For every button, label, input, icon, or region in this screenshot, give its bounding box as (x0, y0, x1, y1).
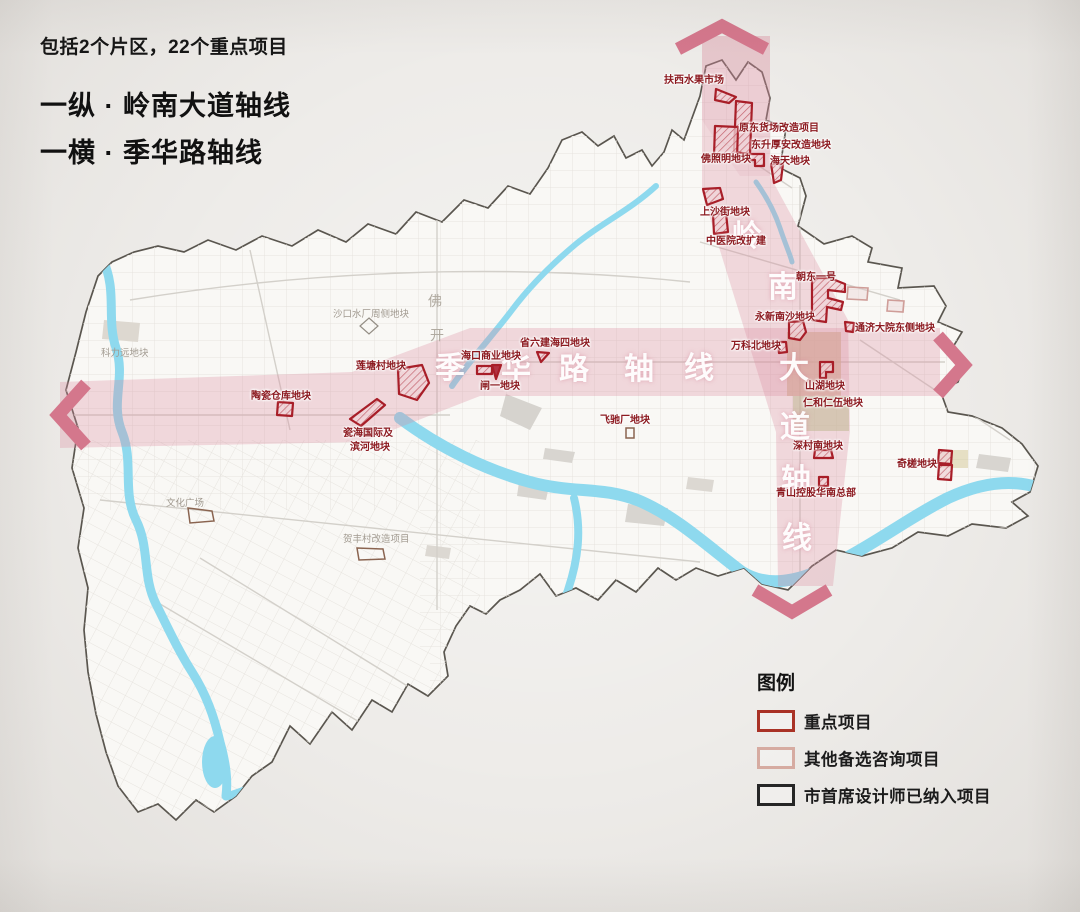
label-qingshan: 青山控股华南总部 (776, 484, 856, 499)
page-title-line1: 一纵 · 岭南大道轴线 (40, 84, 291, 123)
label-fozhaoming: 佛照明地块 (701, 150, 751, 165)
label-feichi: 飞驰厂地块 (600, 411, 650, 426)
legend-item-other: 其他备选咨询项目 (757, 746, 991, 770)
plot-qicha-south (938, 465, 952, 480)
label-hefeng: 贺丰村改造项目 (343, 531, 410, 545)
page-subtitle: 包括2个片区，22个重点项目 (40, 32, 288, 59)
label-keliyuan: 科力远地块 (101, 345, 149, 359)
legend: 图例 重点项目 其他备选咨询项目 市首席设计师已纳入项目 (757, 668, 991, 820)
label-shencun: 深村南地块 (793, 437, 843, 452)
page-title-line2: 一横 · 季华路轴线 (40, 131, 263, 170)
label-zhongyiyuan: 中医院改扩建 (706, 232, 766, 247)
h-axis-char: 路 (559, 344, 589, 388)
label-road-char-fo: 佛 (428, 291, 442, 311)
map-photo: 包括2个片区，22个重点项目 一纵 · 岭南大道轴线 一横 · 季华路轴线 季 … (0, 0, 1080, 912)
legend-label: 市首席设计师已纳入项目 (804, 783, 991, 807)
label-shakou-plant: 沙口水厂周侧地块 (333, 306, 409, 320)
v-axis-char: 线 (782, 513, 812, 557)
label-haikou: 海口商业地块 (461, 347, 521, 362)
plot-qicha-north (938, 450, 952, 464)
label-qicha: 奇槎地块 (897, 455, 937, 470)
plot-taoci-warehouse (277, 402, 293, 416)
legend-item-chief: 市首席设计师已纳入项目 (757, 783, 991, 807)
plot-yongxin-nansha (789, 321, 806, 340)
plot-haikou-commercial (477, 366, 492, 374)
label-tongji: 通济大院东侧地块 (855, 319, 935, 334)
label-fuxi: 扶西水果市场 (664, 71, 724, 86)
plot-tongji (845, 322, 854, 332)
legend-swatch-chief-designer (757, 784, 795, 806)
label-dongsheng: 东升厚安改造地块 (751, 136, 831, 151)
label-shanhu: 山湖地块 (805, 377, 845, 392)
label-wenhua-square: 文化广场 (166, 495, 204, 509)
h-axis-char: 轴 (624, 344, 654, 388)
label-renhe: 仁和仁伍地块 (803, 394, 863, 409)
legend-swatch-key-project (757, 710, 795, 732)
legend-swatch-other-project (757, 747, 795, 769)
label-road-char-kai: 开 (430, 325, 444, 345)
label-shengliujian: 省六建海四地块 (520, 334, 590, 349)
legend-label: 其他备选咨询项目 (804, 746, 940, 770)
label-chaodong: 朝东一号 (796, 268, 836, 283)
label-yuandong: 原东货场改造项目 (739, 119, 819, 134)
v-axis-char: 南 (768, 262, 798, 306)
label-yongxin: 永新南沙地块 (755, 308, 815, 323)
label-cihai-line1: 瓷海国际及 (343, 424, 393, 439)
label-wanke: 万科北地块 (731, 337, 781, 352)
arrow-down (755, 590, 829, 612)
legend-item-key: 重点项目 (757, 709, 991, 733)
legend-label: 重点项目 (804, 709, 872, 733)
label-haitian: 海天地块 (770, 152, 810, 167)
label-cihai-line2: 滨河地块 (350, 438, 390, 453)
label-zhayi: 闸一地块 (480, 377, 520, 392)
label-liantang: 莲塘村地块 (356, 357, 406, 372)
h-axis-char: 线 (684, 343, 714, 387)
label-taoci: 陶瓷仓库地块 (251, 387, 311, 402)
label-shangsha: 上沙街地块 (700, 203, 750, 218)
legend-title: 图例 (757, 668, 991, 695)
